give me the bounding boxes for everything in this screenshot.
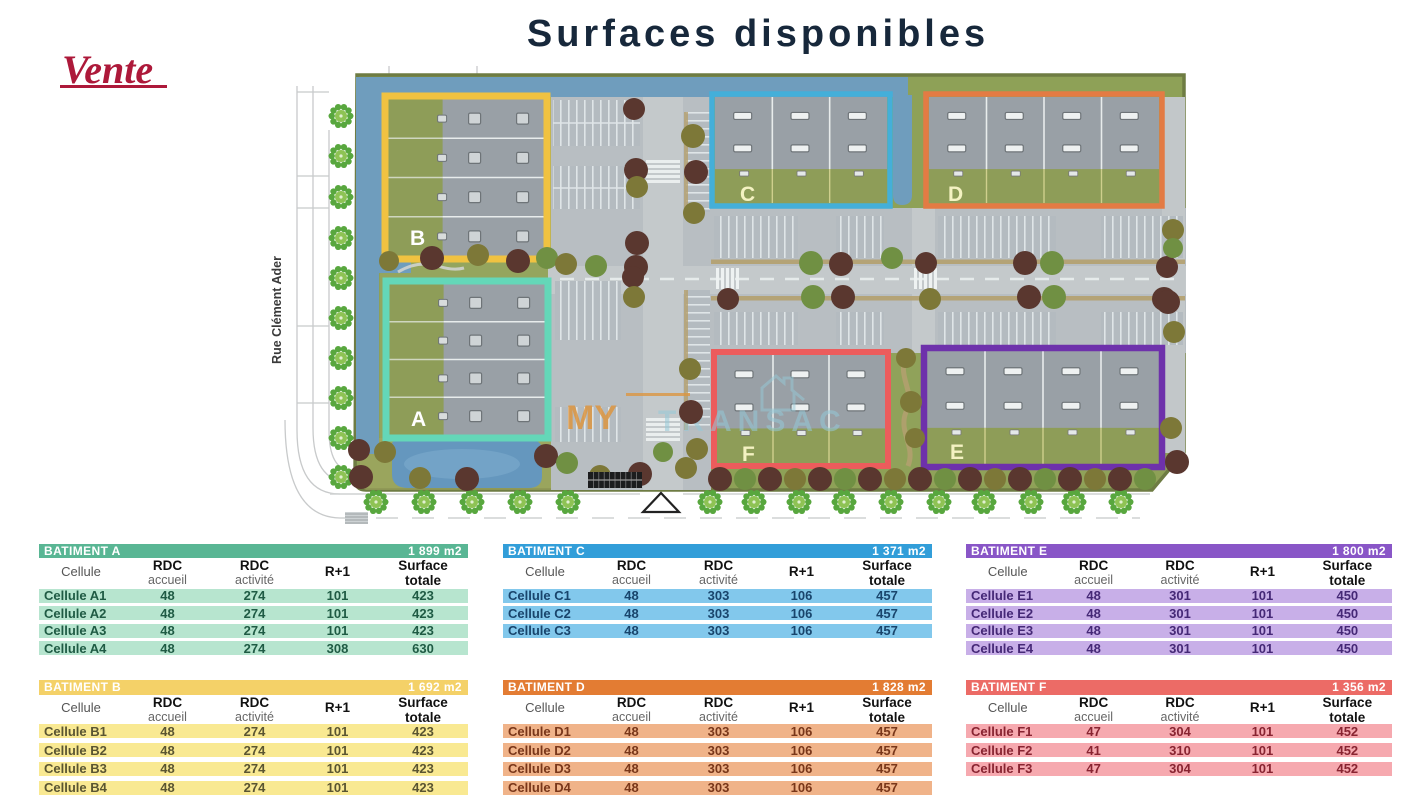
svg-text:E: E: [950, 441, 964, 464]
svg-text:Rue Clément Ader: Rue Clément Ader: [270, 256, 284, 364]
svg-text:F: F: [742, 443, 755, 466]
svg-text:A: A: [411, 408, 426, 431]
svg-text:C: C: [740, 183, 755, 206]
svg-text:B: B: [410, 227, 425, 250]
svg-text:D: D: [948, 183, 963, 206]
svg-text:MY: MY: [566, 399, 617, 437]
